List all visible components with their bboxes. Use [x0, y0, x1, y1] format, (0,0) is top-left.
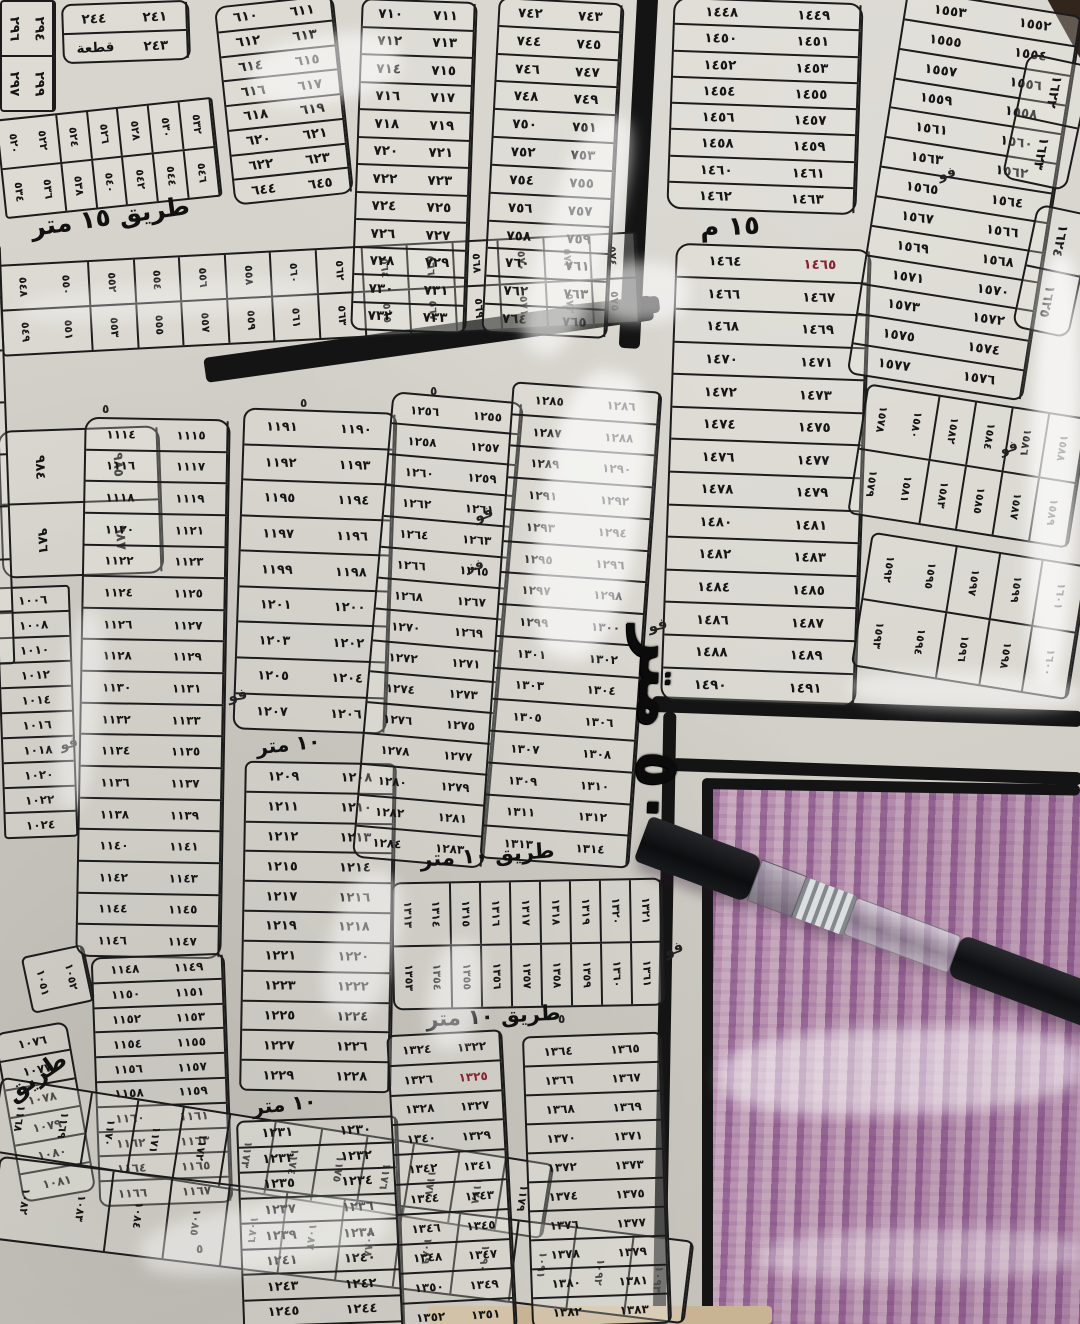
plot-cell: ١٣٢٧ — [446, 1091, 504, 1122]
plot-number: ١٢٧٩ — [440, 779, 470, 795]
plot-number: ٦١١ — [289, 2, 315, 21]
plot-number: ١٣١٢ — [578, 810, 608, 826]
plot-number: ١٣٠٦ — [584, 715, 614, 731]
plot-number: ١٢٥٧ — [470, 439, 500, 455]
plot-number: ١٣٢٧ — [459, 1098, 489, 1114]
plot-number: ١١٥٦ — [114, 1061, 144, 1077]
plot-cell: ٧٢٨ — [354, 247, 410, 274]
plot-number: ١٤٥٩ — [792, 139, 825, 156]
plot-number: ١٢٥٨ — [407, 433, 437, 449]
plot-number: ١٣٧٤ — [548, 1188, 578, 1204]
plot-cell: ٧٥٦ — [489, 194, 550, 223]
plot-number: ١١٥٤ — [113, 1036, 143, 1052]
plot-cell: ٥٢٦ — [88, 109, 124, 159]
plot-number: ١٥٩٣ — [870, 621, 887, 650]
plot-number: قطعة — [76, 39, 115, 57]
plot-number: ١٢٧٠ — [391, 619, 421, 635]
plot-number: ١٣٢١ — [639, 897, 652, 924]
plot-cell: ١٢٢٣ — [243, 971, 316, 1000]
plot-number: ٦٤٥ — [307, 174, 333, 193]
plot-number: ١٤٧٨ — [700, 481, 733, 498]
plot-row: ٧٢٦٧٢٧ — [355, 218, 468, 249]
plot-cell: ٩٩١ — [0, 403, 6, 455]
plot-number: ١١٥٣ — [176, 1009, 206, 1025]
plot-row: ١٣٨٢١٣٨٣ — [533, 1293, 670, 1324]
plot-cell: ١٤٥٣ — [765, 54, 860, 82]
plot-cell: ١١٩٢ — [243, 445, 318, 481]
plot-cell: ١١٣٩ — [150, 800, 223, 831]
plot-number: ١٤٨٩ — [790, 647, 823, 664]
plot-number: ١٢٣٠ — [339, 1122, 371, 1139]
plot-number: ١١٥٥ — [177, 1034, 207, 1050]
plot-number: ١٣٢٥ — [458, 1068, 488, 1084]
plot-cell: ١٤٧٩ — [764, 476, 862, 510]
plot-number: ١١٤٥ — [168, 903, 197, 917]
plot-cell: ١٣٦٦ — [525, 1065, 593, 1094]
plot-cell: ٧٤٧ — [556, 58, 619, 87]
plot-cell: ١٣٧٦ — [530, 1210, 598, 1239]
plot-row: ١١٤٢١١٤٣ — [78, 860, 221, 894]
plot-number: ١١٥٠ — [111, 987, 141, 1003]
scribble-annotation: ٥ — [558, 1012, 565, 1026]
plot-number: ١٤٧٢ — [704, 384, 737, 401]
plot-number: ١٢٧٧ — [442, 748, 472, 764]
plot-cell: ١١٥٠ — [94, 982, 159, 1007]
plot-row: ١١١٨١١١٩ — [85, 480, 228, 514]
plot-number: ١٠٨٢ — [16, 1187, 32, 1215]
plot-number: ٧١٥ — [431, 63, 456, 79]
plot-row: ١٣٧٦١٣٧٧ — [530, 1206, 667, 1240]
plot-cell: ١١٢٩ — [152, 641, 225, 672]
plot-cell: ٥٣٤ — [3, 167, 37, 217]
plot-number: ٧٤٦ — [515, 61, 540, 78]
road-15m-right: ١٥ م — [699, 210, 760, 243]
plot-row: ١٠٥١١٠٥٢ — [23, 946, 93, 1011]
plot-cell: ٧١١ — [418, 2, 476, 29]
plot-cell: ١١١٥ — [156, 420, 229, 451]
plot-cell: ٥٤٦ — [185, 148, 221, 198]
plot-number: ١١٣٩ — [170, 808, 199, 822]
plot-number: ٦١٢ — [235, 32, 261, 51]
plot-cell: ١١٤٢ — [78, 862, 149, 893]
plot-number: ٢٤٣ — [143, 37, 169, 54]
plot-number: ١٤٨٥ — [792, 582, 825, 599]
plot-number: ١٤٨٣ — [793, 550, 826, 567]
plot-number: ١٢٥٩ — [467, 470, 497, 486]
plot-number: ١٢٠٦ — [330, 707, 362, 723]
plot-number: ١٢٢٥ — [263, 1008, 295, 1023]
plot-number: ٧١٧ — [430, 90, 455, 106]
plot-cell: ١٣٥٨ — [542, 944, 573, 1006]
plot-number: ١٥٧٦ — [961, 368, 996, 388]
glare-highlight — [598, 262, 688, 322]
plot-cell: ١٣٦٤ — [524, 1036, 592, 1065]
plot-cell: ٧١٥ — [416, 57, 474, 84]
plot-number: ٧١٠ — [378, 6, 403, 22]
plot-cell: ١٣٦٨ — [526, 1094, 594, 1123]
plot-number: ١٢٤٤ — [345, 1301, 377, 1318]
plot-cell: ١١٣٣ — [151, 705, 224, 736]
plot-number: ١٣٧٩ — [617, 1244, 647, 1260]
plot-number: ١٣٤٢ — [408, 1161, 438, 1177]
plot-number: ٧٥٠ — [512, 116, 537, 133]
plot-number: ٥٤٤ — [163, 165, 178, 186]
plot-row: ٧١٨٧١٩ — [359, 108, 472, 139]
plot-cell: ١٤٨٥ — [760, 574, 858, 608]
plot-cell: ١٤٥٠ — [674, 25, 767, 52]
plot-number: ١١٩٨ — [335, 565, 367, 581]
plot-number: ٥٤٩ — [18, 322, 32, 343]
plot-cell: ٥٢٢ — [26, 115, 62, 165]
plot-number: ٥٢٢ — [36, 130, 51, 151]
plot-number: ٦٢١ — [302, 125, 328, 144]
plot-row: ١١٣٤١١٣٥ — [81, 733, 224, 767]
plot-cell: ٧١٧ — [415, 85, 473, 112]
plot-number: ١٤٩٠ — [694, 677, 727, 694]
plot-number: ١٣٨١ — [618, 1273, 648, 1289]
plot-cell: ٧٤٩ — [555, 86, 618, 115]
plot-number: ١٢٢١ — [264, 949, 296, 964]
plot-cell: ١٤٩١ — [757, 671, 855, 705]
plot-number: ١٥٩٩ — [1008, 575, 1025, 604]
plot-number: ١٤٥٢ — [703, 57, 736, 74]
plot-number: ١٢٢٨ — [335, 1069, 367, 1084]
plot-number: ١٦٢٣ — [1029, 135, 1052, 171]
plot-row: ١٣٧٤١٣٧٥ — [529, 1177, 666, 1211]
plot-number: ١٠٧٦ — [17, 1033, 48, 1052]
plot-cell: ٧١٠ — [363, 0, 419, 27]
plot-number: ١٣٢٠ — [609, 897, 622, 924]
plot-cell: ١٤٦٣ — [760, 186, 855, 214]
plot-row: ٩٩١ — [0, 401, 6, 455]
plot-number: ١١٢٧ — [173, 618, 202, 632]
plot-number: ١٣٠٩ — [508, 773, 538, 789]
plot-row: ١١٤٦١١٤٧ — [77, 923, 220, 957]
plot-cell: ١٤٦٤ — [677, 245, 773, 279]
plot-cell: ١٢٤٤ — [322, 1296, 403, 1322]
plot-cell: ١٣٨٢ — [533, 1297, 601, 1324]
plot-number: ١٣٤٦ — [411, 1220, 441, 1236]
plot-row: ٧٢٨٧٢٩ — [354, 245, 467, 276]
block-241: ٢٤٤٢٤١قطعة٢٤٣ — [61, 0, 191, 64]
plot-number: ٧٤٢ — [517, 5, 542, 22]
plot-row: ٩٨٩ — [0, 349, 4, 403]
plot-cell: ١٤٦١ — [761, 159, 856, 187]
plot-cell: ٩٨٩ — [0, 351, 4, 403]
plot-number: ١٥٩٢ — [881, 555, 898, 584]
plot-number: ١١١٩ — [176, 492, 205, 506]
plot-number: ١٠١٤ — [22, 692, 52, 708]
plot-number: ١٣٦٥ — [610, 1041, 640, 1057]
plot-cell: ٧٤٦ — [497, 55, 558, 84]
plot-number: ١٣٧١ — [613, 1128, 643, 1144]
plot-cell: ٧٢٤ — [356, 193, 412, 220]
plot-number: ١٦٢٤ — [1048, 223, 1071, 259]
plot-number: ١١٩١ — [266, 420, 298, 436]
plot-cell: ١٤٦٨ — [675, 310, 771, 344]
plot-number: ١٢٨٢ — [374, 805, 404, 821]
plot-cell: ١١٤٤ — [78, 893, 149, 924]
plot-cell: ١٢٠٩ — [246, 763, 319, 792]
plot-cell: ١١٥٣ — [158, 1004, 225, 1029]
plot-number: ١١٣٤ — [101, 744, 130, 758]
plot-number: ١١٣٧ — [171, 776, 200, 790]
plot-number: ١٢٠١ — [260, 597, 292, 613]
plot-number: ٧١٣ — [432, 35, 457, 51]
plot-cell: ٢٩٤ — [27, 2, 54, 55]
road-10m-a: ١٠ متر — [255, 729, 322, 760]
plot-number: ٧٦٠ — [504, 255, 529, 272]
plot-number: ١٢٧٥ — [445, 717, 475, 733]
plot-cell: ٧٢٩ — [409, 249, 467, 276]
plot-number: ٧٢١ — [428, 145, 453, 161]
plot-cell: ١٦٢٣ — [1004, 117, 1077, 190]
plot-number: ١٢٦٤ — [399, 526, 429, 542]
plot-cell: ٦٤٤ — [234, 175, 293, 204]
plot-number: ١٠٥٢ — [62, 962, 80, 991]
plot-number: ١٢٧٤ — [385, 681, 415, 697]
plot-number: ١٣٥١ — [470, 1306, 500, 1322]
plot-number: ٦٢٠ — [245, 131, 271, 150]
plot-number: ١٣٢٤ — [401, 1042, 431, 1058]
plot-row: ١٣٥٢١٣٥١ — [402, 1297, 515, 1324]
plot-number: ١١٣٥ — [171, 745, 200, 759]
block-1322: ١٣٢٤١٣٢٢١٣٢٦١٣٢٥١٣٢٨١٣٢٧١٣٤٠١٣٢٩١٣٤٢١٣٤١… — [386, 1029, 518, 1324]
plot-cell: ١٣١٤ — [421, 883, 452, 945]
plot-number: ١٥٧٧ — [876, 355, 911, 375]
plot-number: ٥٥١ — [62, 319, 76, 340]
plot-cell: ٧٤٨ — [495, 82, 556, 111]
plot-number: ١١٢٩ — [173, 650, 202, 664]
plot-number: ٧٥٨ — [506, 227, 531, 244]
plot-cell: ١١١٩ — [155, 483, 228, 514]
plot-number: ١٤٨٢ — [698, 546, 731, 563]
plot-number: ١٤٥١ — [796, 34, 829, 51]
plot-row: ١٢٠٥١٢٠٤ — [236, 656, 387, 697]
plot-number: ١٤٦٨ — [706, 319, 739, 336]
plot-number: ١٤٧٠ — [705, 351, 738, 368]
plot-number: ١٢٠٥ — [257, 669, 289, 685]
plot-number: ١٢٨١ — [437, 810, 467, 826]
plot-number: ١٤٧١ — [800, 354, 833, 371]
plot-cell: ٥٣٢ — [180, 99, 216, 149]
plot-number: ١٣٦٨ — [545, 1101, 575, 1117]
plot-number: ١١٢٦ — [103, 617, 132, 631]
plot-number: ١٣٠٣ — [515, 678, 545, 694]
plot-cell: ١٤٦٧ — [771, 281, 869, 315]
plot-number: ١٣٥٣ — [402, 964, 415, 991]
plot-number: ٧١٩ — [429, 117, 454, 133]
plot-number: ٧١١ — [433, 8, 458, 24]
plot-number: ١١٤١ — [170, 840, 199, 854]
plot-cell: ١٤٧٠ — [674, 342, 770, 376]
plot-number: ١٥٧٥ — [881, 325, 916, 345]
plot-cell: ٧٢٢ — [357, 165, 413, 192]
plot-number: ١٢٣٢ — [340, 1148, 372, 1165]
plot-cell: ١٢٤٢ — [321, 1271, 402, 1297]
plot-number: ١٢٠٤ — [331, 671, 363, 687]
plot-number: ١١٢٤ — [104, 585, 133, 599]
plot-cell: ٧٣٣ — [407, 304, 465, 331]
plot-row: ١١٢٤١١٢٥ — [83, 575, 226, 609]
plot-number: ١٢١٢ — [266, 829, 298, 844]
plot-number: ١٥٨١ — [898, 475, 915, 504]
plot-cell: ١٤٥٦ — [671, 104, 764, 131]
plot-cell: ١٣٧٣ — [595, 1150, 665, 1179]
plot-number: ٧٥٤ — [509, 172, 534, 189]
plot-number: ١٢٤٥ — [267, 1304, 299, 1321]
plot-number: ٥٤٦ — [194, 162, 209, 183]
plot-number: ١١٧٢ — [193, 1132, 210, 1161]
plot-number: ١٢٢٩ — [262, 1068, 294, 1083]
plot-cell: ٢٤٣ — [125, 31, 189, 60]
plot-row: ١٣٧٨١٣٧٩ — [531, 1235, 668, 1269]
plot-cell: ٧٤٣ — [559, 2, 622, 31]
plot-cell: ٧٣٠ — [353, 275, 409, 302]
plot-number: ٧٤٥ — [576, 36, 601, 53]
plot-number: ١٣٠٨ — [582, 746, 612, 762]
plot-number: ٢٩٤ — [32, 16, 48, 41]
plot-cell: ١١٩٩ — [239, 552, 314, 588]
plot-cell: ٧٥٠ — [494, 110, 555, 139]
plot-number: ٧٢٤ — [372, 198, 397, 214]
plot-number: ٢٤٤ — [81, 10, 107, 27]
plot-cell: ١٢٤٥ — [244, 1299, 323, 1324]
plot-cell: ١٣٤٨ — [399, 1243, 455, 1274]
plot-cell: ١٣٤١ — [449, 1150, 507, 1181]
plot-number: ١٣٨٠ — [551, 1275, 581, 1291]
plot-number: ١٥٧٢ — [970, 309, 1005, 329]
plot-number: ١٣٤٤ — [409, 1190, 439, 1206]
plot-cell: ١٣٤٩ — [456, 1269, 514, 1300]
plot-number: ١٤٧٤ — [703, 416, 736, 433]
plot-cell: ٧٢١ — [413, 139, 471, 166]
plot-number: ١٥٩٥ — [922, 561, 939, 590]
plot-number: ١٢١٥ — [266, 859, 298, 874]
plot-cell: ١٤٦٦ — [676, 277, 772, 311]
plot-number: ١٣٤٥ — [466, 1217, 496, 1233]
plot-cell: ٥٢٤ — [57, 112, 93, 162]
plot-number: ١٤٦٠ — [699, 162, 732, 179]
plot-cell: ١٤٥٧ — [763, 107, 858, 135]
block-1364: ١٣٦٤١٣٦٥١٣٦٦١٣٦٧١٣٦٨١٣٦٩١٣٧٠١٣٧١١٣٧٢١٣٧٣… — [522, 1032, 672, 1324]
plot-row: ٢٩٦٢٩٤ — [2, 2, 54, 55]
plot-number: ١١٢٥ — [174, 587, 203, 601]
plot-number: ١١٣٣ — [172, 713, 201, 727]
plot-cell: ٩٨٤ — [0, 430, 80, 504]
plot-cell: ٧٤٤ — [498, 27, 559, 56]
plot-number: ١٥٨٧ — [1007, 492, 1024, 521]
plot-cell: ١١٢٣ — [154, 547, 227, 578]
plot-cell: ١٤٥٤ — [672, 78, 765, 105]
plot-cell: ١٠٨٢ — [0, 1158, 57, 1244]
plot-number: ٥٦٨ — [469, 253, 483, 274]
scribble-annotation: ٥ — [430, 384, 437, 398]
plot-number: ١٢٤٣ — [267, 1278, 299, 1295]
plot-cell: ١٢١٢ — [245, 822, 318, 851]
plot-number: ٥٢٨ — [128, 120, 143, 141]
plot-cell: ١٣٦١ — [632, 943, 663, 1005]
plot-cell: ١٣٤٠ — [393, 1124, 449, 1155]
plot-number: ١٢٦٦ — [396, 557, 426, 573]
scribble-annotation: ٥ — [102, 402, 109, 416]
plot-number: ١٤٦٩ — [801, 322, 834, 339]
plot-row: ١١٩٢١١٩٣ — [243, 443, 394, 484]
plot-number: ٥٥٩ — [244, 310, 258, 331]
plot-number: ٧٤٩ — [573, 92, 598, 109]
plot-number: ١٢٠٩ — [267, 770, 299, 785]
plot-row: ١١٣٦١١٣٧ — [80, 765, 223, 799]
plot-number: ١١٢٣ — [175, 555, 204, 569]
plot-number: ٥٣٦ — [41, 178, 56, 199]
plot-cell: ١٤٦٢ — [668, 182, 761, 209]
plot-number: ١٥٦٨ — [980, 250, 1015, 270]
plot-number: ١٣٥٨ — [550, 961, 563, 988]
plot-cell: ١٤٤٩ — [767, 2, 862, 30]
plot-number: ١٢٣٤ — [341, 1173, 373, 1190]
plot-number: ١٤٧٥ — [798, 420, 831, 437]
plot-cell: ١١٩٣ — [317, 448, 394, 484]
plot-cell: ١٤٥٢ — [673, 51, 766, 78]
plot-number: ٧١٨ — [374, 116, 399, 132]
plot-cell: ١٢٢٥ — [242, 1001, 315, 1030]
scribble-annotation: فو — [227, 684, 249, 705]
plot-number: ١٣٠١ — [517, 646, 547, 662]
plot-number: ١١٤٢ — [99, 870, 128, 884]
plot-number: ١١٤٧ — [168, 935, 197, 949]
plot-number: ١١٤٠ — [100, 838, 129, 852]
plot-number: ١٣٦٧ — [611, 1070, 641, 1086]
plot-cell: ١٣١٥ — [451, 883, 482, 945]
plot-cell: ١٣١٦ — [481, 882, 512, 944]
plot-number: ١٤٨١ — [794, 517, 827, 534]
plot-cell: ١١٩١ — [244, 409, 319, 445]
plot-number: ٥٢٤ — [66, 126, 81, 147]
plot-number: ٧٢٦ — [371, 225, 396, 241]
plot-cell: ٧٤٥ — [558, 30, 621, 59]
plot-number: ١٣١١ — [506, 805, 536, 821]
plot-cell: ١٤٨٩ — [758, 639, 856, 673]
plot-number: ١١١٤ — [107, 427, 136, 441]
plot-cell: ١١١٦ — [86, 450, 157, 481]
plot-number: ١١٣٠ — [102, 680, 131, 694]
plot-number: ٧٤٣ — [577, 8, 602, 25]
plot-cell: ١٣٧٤ — [529, 1181, 597, 1210]
plot-cell: ١٤٨٧ — [759, 606, 857, 640]
plot-cell: ١١٥٥ — [159, 1029, 226, 1054]
block-1448: ١٤٤٨١٤٤٩١٤٥٠١٤٥١١٤٥٢١٤٥٣١٤٥٤١٤٥٥١٤٥٦١٤٥٧… — [666, 0, 863, 215]
plot-number: ٧٣٢ — [368, 308, 393, 324]
plot-number: ١٣٥٧ — [520, 962, 533, 989]
plot-row: ١١٣٢١١٣٣ — [81, 702, 224, 736]
plot-number: ٧٢٧ — [426, 227, 451, 243]
plot-number: ١٢٦٨ — [393, 588, 423, 604]
plot-row: ٩٩٥ — [0, 506, 10, 560]
plot-cell: ٢٩٦ — [2, 2, 27, 55]
plot-number: ٧٢٥ — [427, 200, 452, 216]
plot-number: ١٢٠٧ — [256, 704, 288, 720]
plot-cell: ١٣٧٥ — [596, 1179, 666, 1208]
plot-number: ١٠١٢ — [21, 667, 51, 683]
plot-cell: ١٣٧٩ — [598, 1237, 668, 1266]
plot-cell: ١٢٣١ — [238, 1120, 317, 1146]
plot-number: ١١١٨ — [106, 490, 135, 504]
plot-number: ٧١٦ — [375, 88, 400, 104]
plot-number: ١٢٠٣ — [259, 633, 291, 649]
plot-number: ٢٤١ — [142, 8, 168, 25]
plot-cell: ١٢١٥ — [245, 852, 318, 881]
plot-number: ٥٤٨ — [16, 277, 30, 298]
